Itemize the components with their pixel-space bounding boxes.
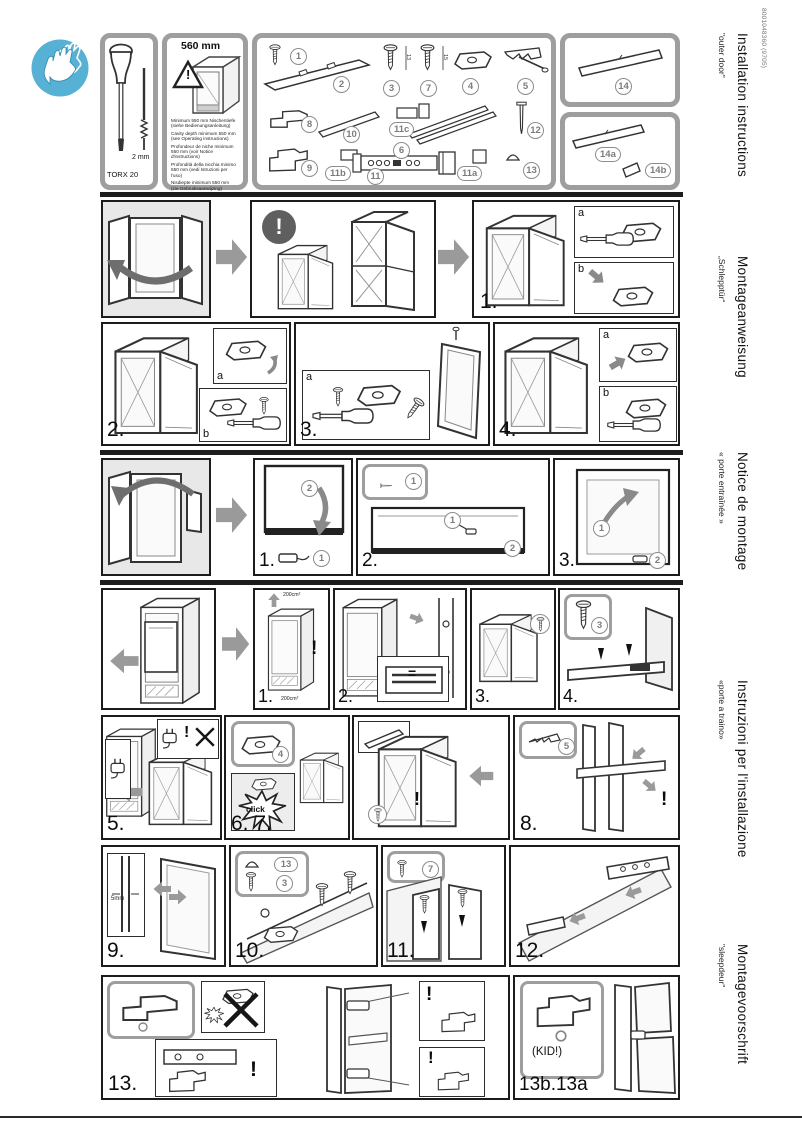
kid-lock-part-icon: [533, 992, 593, 1030]
rail-step-4-number: 4.: [563, 686, 578, 707]
appliance-drawing: [296, 729, 348, 825]
sequence-ref-1: 1: [444, 512, 461, 529]
cavity-notes: Minimum 550 mm Nischentiefe (siehe Bedie…: [171, 118, 237, 193]
part-4-label: 4: [462, 78, 479, 95]
part-ref-13: 13: [274, 857, 298, 872]
niche-overview-panel: [101, 588, 216, 710]
gap-5mm-label: 5mm: [111, 896, 124, 902]
step-8-warning-mark: !: [661, 789, 667, 811]
part-11c-label: 11c: [389, 122, 414, 137]
plug-warning-mark: !: [184, 724, 189, 742]
section-divider: [100, 192, 683, 197]
step-5-panel: ! 5.: [101, 715, 222, 840]
slide-arrow-icon: [466, 765, 496, 787]
lang-fr-subtitle: « porte entraînée »: [716, 452, 728, 570]
lang-block-de: Montageanweisung „Schlepptür“: [716, 256, 752, 378]
step-6-7-panel: 4 click 6. 7.: [224, 715, 350, 840]
screw-icon: [258, 397, 270, 415]
fitting-step-2-panel: 1 1 2 2.: [356, 458, 550, 576]
level-inset: =: [377, 656, 449, 702]
fitting-step-2-number: 2.: [362, 550, 378, 572]
warning-mark: !: [428, 1048, 434, 1068]
step-2-panel: a b 2.: [101, 322, 291, 446]
cavity-note-de: Minimum 550 mm Nischentiefe (siehe Bedie…: [171, 118, 237, 128]
wrong-way-inset: [201, 981, 265, 1033]
screwdriver-icon: [108, 43, 135, 155]
part-5-label: 5: [517, 78, 534, 95]
screw-callout-icon: [530, 614, 550, 634]
pin-point-icon: [138, 1022, 148, 1032]
part-ref-3: 3: [276, 875, 293, 892]
part-14ab-panel: 14a 14b: [560, 112, 680, 190]
step-4-panel: a b 4.: [493, 322, 680, 446]
level-equal-sign: =: [408, 665, 416, 681]
door-warning-mark: !: [414, 789, 420, 810]
screwdriver-detail-icon: [311, 405, 375, 427]
step-13-number: 13.: [108, 1072, 137, 1096]
next-arrow-icon: [222, 626, 250, 662]
gap-detail-inset: 5mm: [107, 853, 145, 937]
detail-arrow-icon: [608, 355, 628, 371]
part-14-label: 14: [615, 78, 632, 95]
screw7-length: 15: [442, 54, 448, 60]
door-rail-drawing: [515, 717, 677, 837]
part-ref-4: 4: [272, 746, 289, 763]
rail-step-4-panel: 3 4.: [558, 588, 680, 710]
step-2-detail-b: b: [199, 388, 287, 442]
step-4-detail-a: a: [599, 328, 677, 382]
plug-detail-inset: [105, 739, 131, 799]
step-6-7-number: 6. 7.: [231, 812, 272, 836]
lang-nl-title: Montagevoorschrift: [733, 944, 752, 1064]
screw-icon: [536, 617, 545, 632]
plug-icon: [160, 726, 180, 750]
screw-icon: [343, 871, 357, 895]
screwdriver-detail-icon: [226, 413, 282, 433]
lang-en-title: Installation instructions: [733, 33, 752, 177]
step-2-number: 2.: [107, 418, 125, 442]
clip-arrow-icon: [629, 747, 647, 761]
lang-block-fr: Notice de montage « porte entraînée »: [716, 452, 752, 570]
part-8-label: 8: [301, 116, 318, 133]
section-divider: [100, 450, 683, 455]
step-1-detail-a: a: [574, 206, 674, 258]
screw-callout-icon: [368, 805, 387, 824]
screw-icon: [374, 808, 382, 822]
step-10-panel: 13 3 10.: [229, 845, 378, 967]
screwdriver-label: TORX 20: [107, 170, 138, 179]
next-arrow-icon: [438, 238, 470, 276]
lang-block-nl: Montagevoorschrift "sleepdeur": [716, 944, 752, 1064]
plug-warning-inset: !: [157, 719, 219, 759]
sequence-ref-2: 2: [301, 480, 318, 497]
parts-overview-panel: 13 15 1 2 3 7 4 5 8 10 11c 6 12 9 11b 11…: [252, 33, 556, 190]
sequence-ref-2: 2: [504, 540, 521, 557]
screw-icon: [457, 889, 468, 908]
plug-icon: [108, 756, 128, 780]
section-divider: [100, 580, 683, 585]
fitting-step-3-panel: 1 2 3.: [553, 458, 680, 576]
bottom-lever-inset: !: [419, 1047, 485, 1097]
vent-step-1-panel: 200cm² 200cm² ! 1.: [253, 588, 330, 710]
document-code: 8001048360 (9705): [760, 8, 767, 68]
vent-area-top-label: 200cm²: [283, 592, 300, 598]
lang-fr-title: Notice de montage: [733, 452, 752, 570]
fix-step-3-number: 3.: [475, 686, 490, 707]
step-13b-13a-number: 13b.13a: [519, 1074, 588, 1096]
sequence-ref-1: 1: [593, 520, 610, 537]
step-3-number: 3.: [300, 418, 318, 442]
fitting-step-3-number: 3.: [559, 550, 575, 572]
lever-detail-inset: !: [155, 1039, 277, 1097]
step-11-panel: 7 11.: [381, 845, 506, 967]
hinge-plate-icon: [224, 337, 268, 363]
cavity-note-nl: Nisdiepte minimum 550 mm (zie Gebruiksaa…: [171, 180, 237, 190]
crossed-out-icon: [194, 726, 216, 748]
lang-de-title: Montageanweisung: [733, 256, 752, 378]
detail-arrow-icon: [587, 269, 607, 285]
step-8-number: 8.: [520, 812, 538, 836]
lever-part-icon: [164, 1068, 210, 1094]
step-3-detail-a: a: [302, 370, 430, 440]
screw-icon: [403, 397, 425, 421]
sequence-ref-1: 1: [405, 473, 422, 490]
lang-en-subtitle: "outer door": [716, 33, 728, 177]
screw3-length: 13: [405, 54, 411, 60]
adjust-arrow-right-icon: [167, 889, 189, 905]
part-11a-label: 11a: [457, 166, 482, 181]
open-door-scene-drawing: [281, 983, 413, 1095]
click-label: click: [246, 804, 265, 814]
cavity-depth-panel: 560 mm ! Minimum 550 mm Nischentiefe (si…: [162, 33, 248, 190]
part-2-label: 2: [333, 76, 350, 93]
crossed-out-icon: [220, 990, 262, 1030]
step-9-panel: 5mm 9.: [101, 845, 226, 967]
step-9-number: 9.: [107, 939, 125, 963]
step-4-number: 4.: [499, 418, 517, 442]
gap-lines-drawing: [108, 854, 142, 934]
detail-a-label: a: [578, 207, 584, 219]
part-9-label: 9: [301, 160, 318, 177]
cavity-width-label: 560 mm: [181, 40, 220, 52]
detail-a-label: a: [306, 371, 312, 383]
lang-it-subtitle: «porte a traino»: [716, 680, 728, 858]
kid-label: (KID!): [532, 1046, 562, 1058]
step-11-number: 11.: [387, 939, 415, 963]
align-step-2-number: 2.: [338, 686, 353, 707]
align-step-2-panel: = 2.: [333, 588, 467, 710]
step-1-detail-b: b: [574, 262, 674, 314]
lever-part-icon: [436, 1010, 480, 1034]
vent-warning-mark: !: [311, 638, 317, 660]
door-swing-overview-panel: [101, 200, 211, 318]
airflow-up-arrow-icon: [267, 592, 281, 608]
part-ref-5: 5: [558, 738, 575, 755]
tools-panel: 2 mm TORX 20: [100, 33, 158, 190]
step-1-panel: a b 1.: [472, 200, 680, 318]
door-attach-panel: !: [352, 715, 510, 840]
hinge-plate-icon: [626, 339, 670, 365]
detail-b-label: b: [203, 428, 209, 440]
door-gap-drawing: [147, 851, 223, 963]
top-lever-inset: !: [419, 981, 485, 1041]
sequence-ref-2: 2: [649, 552, 666, 569]
gloves-badge-icon: [30, 38, 90, 98]
screwdriver-detail-icon: [606, 415, 662, 435]
bracket-8-part-icon: [120, 992, 180, 1024]
part-6-label: 6: [393, 142, 410, 159]
step-13b-13a-panel: (KID!) 13b.13a: [513, 975, 680, 1100]
step-12-panel: 12.: [509, 845, 680, 967]
sequence-ref-1: 1: [313, 550, 330, 567]
tall-appliance-drawing: [344, 206, 430, 312]
vent-cabinet-drawing: [265, 600, 317, 698]
screw-icon: [315, 883, 329, 907]
part-10-label: 10: [343, 126, 360, 143]
step-12-number: 12.: [515, 939, 544, 963]
detail-a-label: a: [603, 329, 609, 341]
fitting-step-1-panel: 2 1 1.: [253, 458, 353, 576]
cavity-warning-mark: !: [186, 67, 190, 82]
screwdriver-detail-icon: [579, 229, 635, 249]
part-11b-label: 11b: [325, 166, 351, 181]
lang-block-it: Instruzioni per l'installazione «porte a…: [716, 680, 752, 858]
clip-arrow-icon: [641, 779, 659, 793]
screw-icon: [419, 895, 430, 914]
cavity-note-it: Profondità della nicchia minimo 550 mm (…: [171, 162, 237, 178]
fitting-step-1-number: 1.: [259, 550, 275, 572]
door-swing-drawing: [103, 202, 208, 315]
cavity-note-en: Cavity depth minimum 550 mm (see Operati…: [171, 131, 237, 141]
appliance-in-niche-drawing: [143, 620, 179, 674]
flip-arrow-icon: [264, 355, 282, 375]
step-4-detail-b: b: [599, 386, 677, 442]
hex-key-icon: [138, 68, 150, 152]
part-11-label: 11: [367, 168, 384, 185]
small-appliance-drawing: [270, 240, 342, 312]
part-1-label: 1: [290, 48, 307, 65]
fix-step-3-panel: 3.: [470, 588, 556, 710]
kid-lock-inset: (KID!): [520, 981, 604, 1079]
hex-key-label: 2 mm: [132, 154, 150, 161]
step-5-number: 5.: [107, 812, 125, 836]
lang-nl-subtitle: "sleepdeur": [716, 944, 728, 1064]
step-2-detail-a: a: [213, 328, 287, 384]
double-door-drawing: [607, 981, 677, 1095]
next-arrow-icon: [216, 238, 248, 276]
page-bottom-rule: [0, 1116, 802, 1118]
detail-b-label: b: [603, 387, 609, 399]
alert-mark: !: [275, 216, 282, 238]
detail-a-label: a: [217, 370, 223, 382]
step-13-panel: ! ! ! 13.: [101, 975, 510, 1100]
lang-block-en: Installation instructions "outer door": [716, 33, 752, 177]
part-7-label: 7: [420, 80, 437, 97]
appliance-types-panel: !: [250, 200, 436, 318]
step-3-panel: a 3.: [294, 322, 490, 446]
bracket-part-inset: [107, 981, 195, 1039]
step-8-panel: 5 ! 8.: [513, 715, 680, 840]
step-10-number: 10.: [235, 939, 264, 963]
vent-area-bottom-label: 200cm²: [281, 696, 298, 702]
push-in-arrow-icon: [107, 648, 141, 674]
part-14-panel: 14: [560, 33, 680, 107]
vent-step-1-number: 1.: [258, 686, 273, 707]
pin-point-icon: [555, 1030, 567, 1042]
step-1-number: 1.: [480, 290, 498, 314]
detail-b-label: b: [578, 263, 584, 275]
part-ref-3: 3: [591, 617, 608, 634]
bracket-icon: [261, 923, 301, 945]
door-leaning-drawing: [434, 326, 488, 442]
next-arrow-ic0n: [216, 496, 248, 534]
cavity-note-fr: Profondeur de niche minimum 550 mm (voir…: [171, 144, 237, 160]
hinge-bar-drawing: [162, 1046, 242, 1068]
screw-icon: [331, 387, 345, 407]
hinge-plate-icon: [611, 283, 655, 309]
part-14b-label: 14b: [645, 163, 671, 178]
part-12-label: 12: [527, 122, 544, 139]
door-fitting-drawing: [103, 460, 208, 573]
lang-de-subtitle: „Schlepptür“: [716, 256, 728, 378]
lever-warning-mark: !: [250, 1058, 257, 1082]
part-3-label: 3: [383, 80, 400, 97]
fix-appliance-drawing: [474, 600, 544, 694]
lever-part-icon: [430, 1070, 476, 1092]
warning-mark: !: [426, 984, 432, 1006]
part-ref-7: 7: [422, 861, 439, 878]
part-14a-label: 14a: [595, 147, 621, 162]
hinge-part-inset: 4: [231, 721, 295, 767]
door-fitting-overview-panel: [101, 458, 211, 576]
part-13-label: 13: [523, 162, 540, 179]
slide-arrow-icon: [623, 885, 643, 900]
instruction-sheet: 8001048360 (9705) Installation instructi…: [0, 0, 802, 1134]
press-arrow-icon: [409, 612, 425, 625]
alert-circle-icon: !: [262, 210, 296, 244]
lang-it-title: Instruzioni per l'installazione: [733, 680, 752, 858]
slide-arrow-icon: [567, 911, 587, 926]
